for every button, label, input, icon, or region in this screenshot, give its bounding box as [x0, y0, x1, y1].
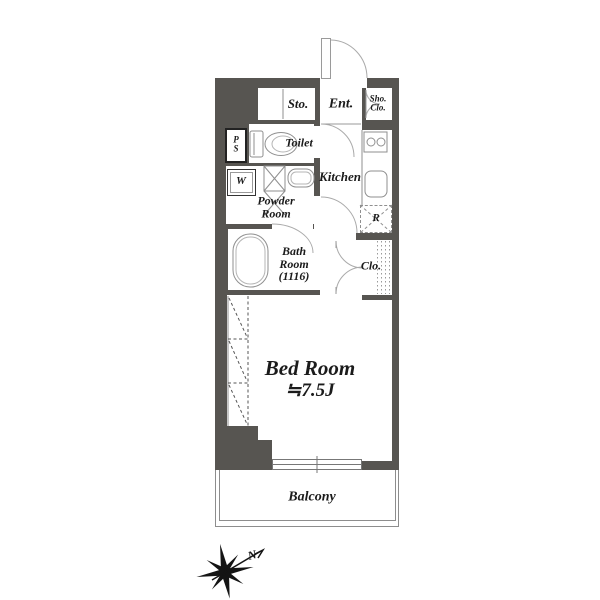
bath-room-label: Bath Room (1116)	[279, 245, 310, 283]
kitchen-label: Kitchen	[319, 170, 361, 184]
bedroom-label: Bed Room	[265, 357, 355, 379]
kitchen-sink	[365, 171, 387, 197]
compass-rose: N	[191, 539, 263, 600]
vanity-sink-inner	[291, 172, 311, 184]
bedroom-size-label: ≒7.5J	[285, 381, 334, 401]
shoe-closet-label: Sho. Clo.	[370, 95, 387, 114]
balcony-label: Balcony	[288, 491, 335, 506]
compass-north-label: N	[245, 547, 259, 563]
pipe-space-label: P S	[233, 136, 239, 155]
bedroom-wall-niche	[228, 296, 248, 426]
bath-room-label-line1: Bath	[279, 245, 310, 258]
toilet-door-arc	[321, 124, 354, 157]
linework-layer: N	[0, 0, 600, 600]
storage-label: Sto.	[288, 97, 309, 111]
front-door-arc	[331, 40, 367, 78]
fridge-label: R	[372, 213, 379, 225]
shoe-closet-label-line2: Clo.	[370, 104, 387, 113]
bath-room-label-line3: (1116)	[279, 270, 310, 283]
toilet-tank	[250, 131, 263, 157]
entrance-label: Ent.	[329, 98, 354, 113]
stove-burner-left	[367, 138, 375, 146]
powder-room-label-line1: Powder	[257, 194, 294, 207]
washer-label: W	[236, 176, 246, 188]
stove-burner-right	[377, 138, 385, 146]
floorplan-canvas: N Sto. Ent. Sho. Clo. P S Toilet W Kitch…	[0, 0, 600, 600]
bathtub-inner	[236, 237, 265, 284]
pipe-space-label-line2: S	[233, 145, 239, 154]
closet-label: Clo.	[361, 260, 381, 273]
powder-room-label-line2: Room	[257, 207, 294, 220]
bathtub	[233, 234, 268, 287]
closet-door-arc-bottom	[336, 267, 363, 294]
closet-door-arc-top	[336, 241, 363, 268]
powder-door-arc	[321, 197, 357, 233]
powder-room-label: Powder Room	[257, 194, 294, 219]
toilet-label: Toilet	[285, 137, 313, 150]
